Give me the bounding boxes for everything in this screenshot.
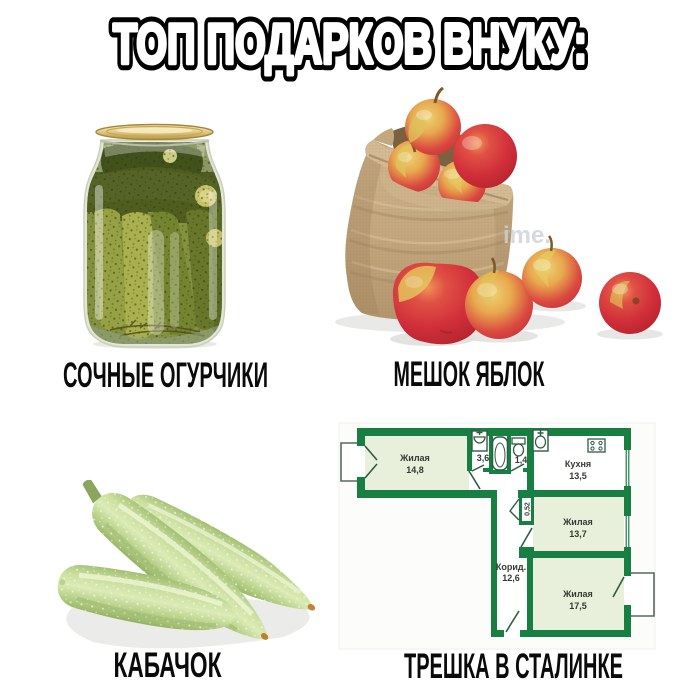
svg-text:13,5: 13,5 xyxy=(569,471,587,481)
svg-text:14,8: 14,8 xyxy=(406,465,424,475)
svg-text:3,6: 3,6 xyxy=(477,453,490,463)
svg-text:МЕШОК ЯБЛОК: МЕШОК ЯБЛОК xyxy=(394,355,545,394)
svg-text:0,52: 0,52 xyxy=(525,502,532,516)
svg-text:Жилая: Жилая xyxy=(399,453,430,463)
svg-text:ime.: ime. xyxy=(503,222,551,249)
svg-text:12,6: 12,6 xyxy=(502,573,520,583)
svg-text:Кухня: Кухня xyxy=(565,459,591,469)
svg-text:Корид.: Корид. xyxy=(496,562,526,572)
svg-text:СОЧНЫЕ ОГУРЧИКИ: СОЧНЫЕ ОГУРЧИКИ xyxy=(63,356,268,395)
svg-text:Жилая: Жилая xyxy=(562,589,593,599)
svg-text:17,5: 17,5 xyxy=(569,601,587,611)
svg-text:ТРЕШКА В СТАЛИНКЕ: ТРЕШКА В СТАЛИНКЕ xyxy=(404,647,623,686)
svg-text:ТОП ПОДАРКОВ ВНУКУ:: ТОП ПОДАРКОВ ВНУКУ: xyxy=(113,12,587,76)
svg-text:КАБАЧОК: КАБАЧОК xyxy=(114,646,222,685)
svg-text:Жилая: Жилая xyxy=(562,517,593,527)
svg-text:1,4: 1,4 xyxy=(515,455,528,465)
svg-text:13,7: 13,7 xyxy=(569,529,587,539)
